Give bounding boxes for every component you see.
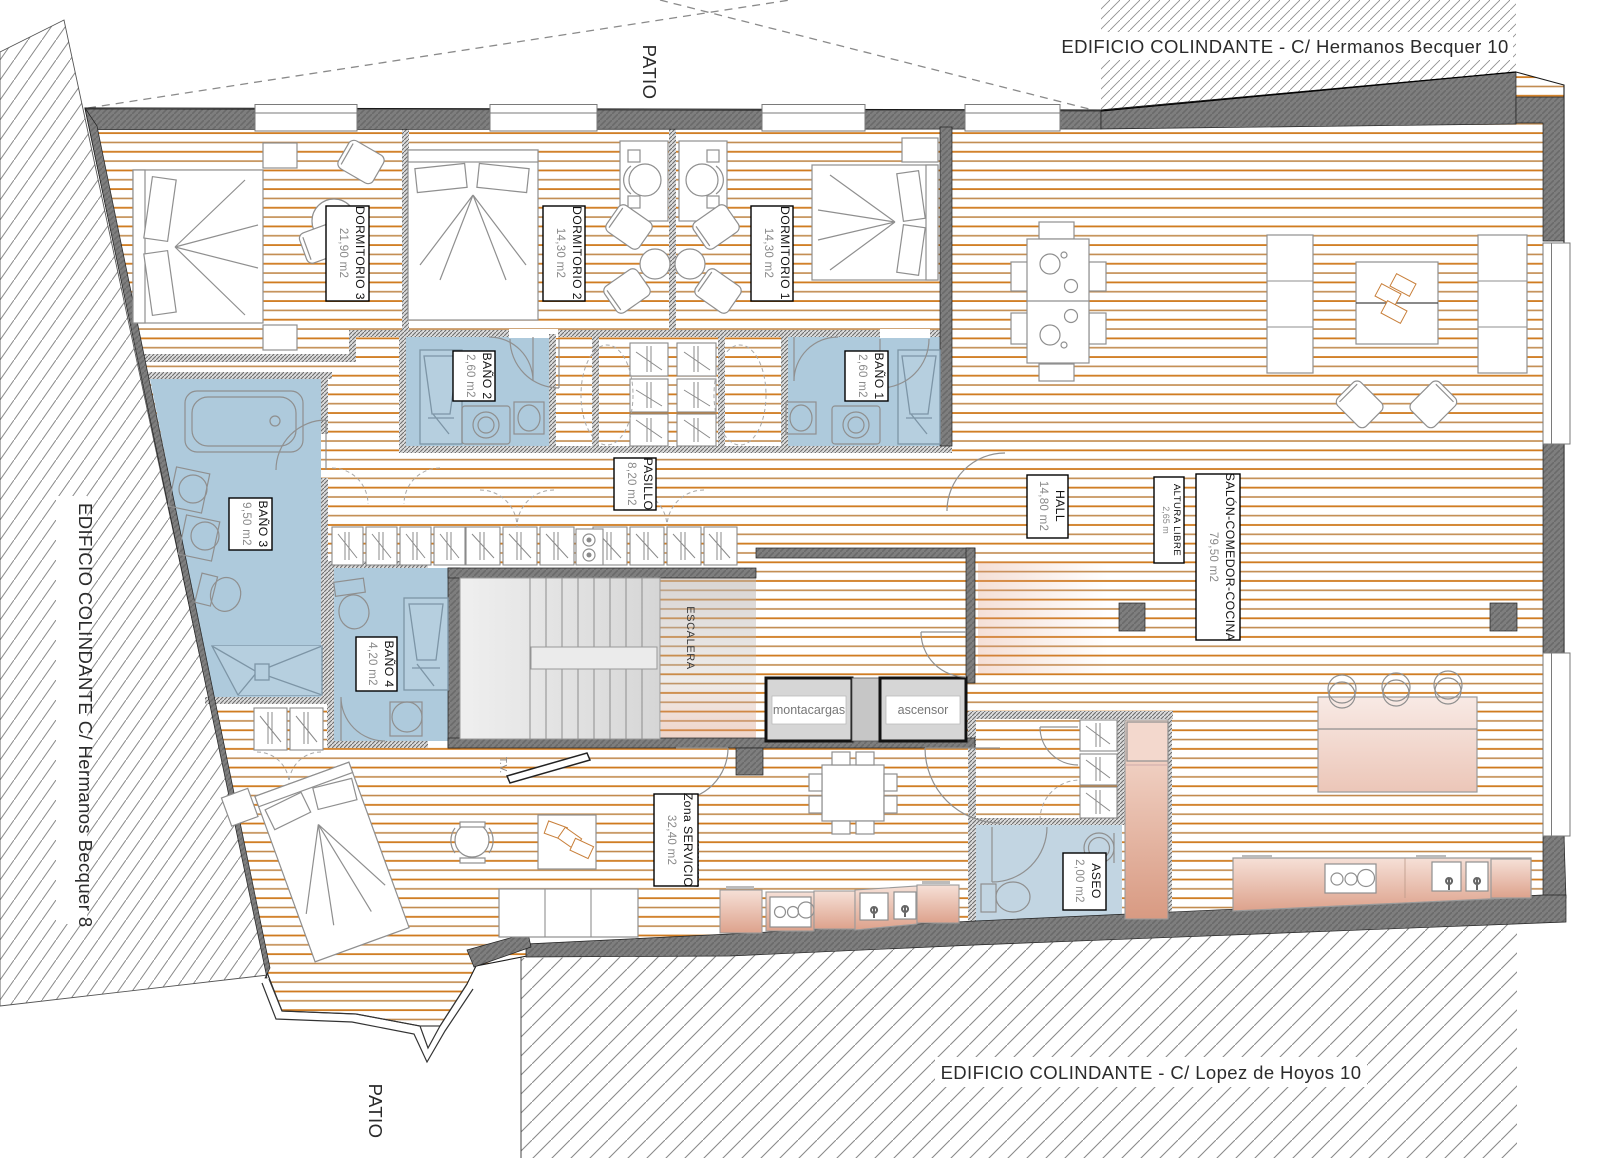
svg-text:2,60 m2: 2,60 m2 [464,354,476,398]
svg-text:2,65 m: 2,65 m [1161,506,1171,534]
svg-text:BAÑO 4: BAÑO 4 [382,640,396,687]
svg-text:EDIFICIO COLINDANTE - C/ Herma: EDIFICIO COLINDANTE - C/ Hermanos Becque… [1061,36,1508,57]
svg-text:PATIO: PATIO [639,45,660,100]
svg-text:PASILLO: PASILLO [641,458,655,511]
svg-text:SALÓN-COMEDOR-COCINA: SALÓN-COMEDOR-COCINA [1223,473,1238,642]
svg-text:14,80 m2: 14,80 m2 [1037,481,1049,531]
svg-text:BAÑO 1: BAÑO 1 [872,352,886,399]
svg-text:EDIFICIO COLINDANTE - C/ Lope: EDIFICIO COLINDANTE - C/ Lopez de Hoyos … [941,1062,1362,1083]
svg-text:HALL: HALL [1053,490,1067,522]
svg-text:32,40 m2: 32,40 m2 [665,815,677,865]
svg-text:4,20 m2: 4,20 m2 [366,642,378,686]
svg-text:79,50 m2: 79,50 m2 [1207,532,1219,582]
svg-text:ESCALERA: ESCALERA [684,606,696,670]
svg-text:DORMITORIO 3: DORMITORIO 3 [353,206,367,300]
svg-text:BAÑO 3: BAÑO 3 [256,500,270,547]
svg-text:2,60 m2: 2,60 m2 [856,354,868,398]
svg-text:EDIFICIO COLINDANTE C/ Herman: EDIFICIO COLINDANTE C/ Hermanos Becquer … [75,503,96,928]
svg-text:14,30 m2: 14,30 m2 [762,228,774,278]
svg-text:DORMITORIO 1: DORMITORIO 1 [778,206,792,300]
svg-text:ascensor: ascensor [898,703,949,717]
svg-text:Zona SERVICIO: Zona SERVICIO [681,793,695,887]
svg-text:DORMITORIO 2: DORMITORIO 2 [570,206,584,300]
svg-text:BAÑO 2: BAÑO 2 [480,352,494,399]
svg-text:2,00 m2: 2,00 m2 [1073,859,1085,903]
svg-text:PATIO: PATIO [365,1084,386,1139]
svg-text:ALTURA LIBRE: ALTURA LIBRE [1171,484,1182,556]
svg-text:9,50 m2: 9,50 m2 [240,502,252,546]
svg-text:21,90 m2: 21,90 m2 [337,228,349,278]
svg-text:montacargas: montacargas [773,703,845,717]
svg-text:14,30 m2: 14,30 m2 [554,228,566,278]
svg-text:ASEO: ASEO [1089,863,1103,898]
svg-text:8,20 m2: 8,20 m2 [625,462,637,506]
svg-text:T.V.: T.V. [497,757,508,773]
